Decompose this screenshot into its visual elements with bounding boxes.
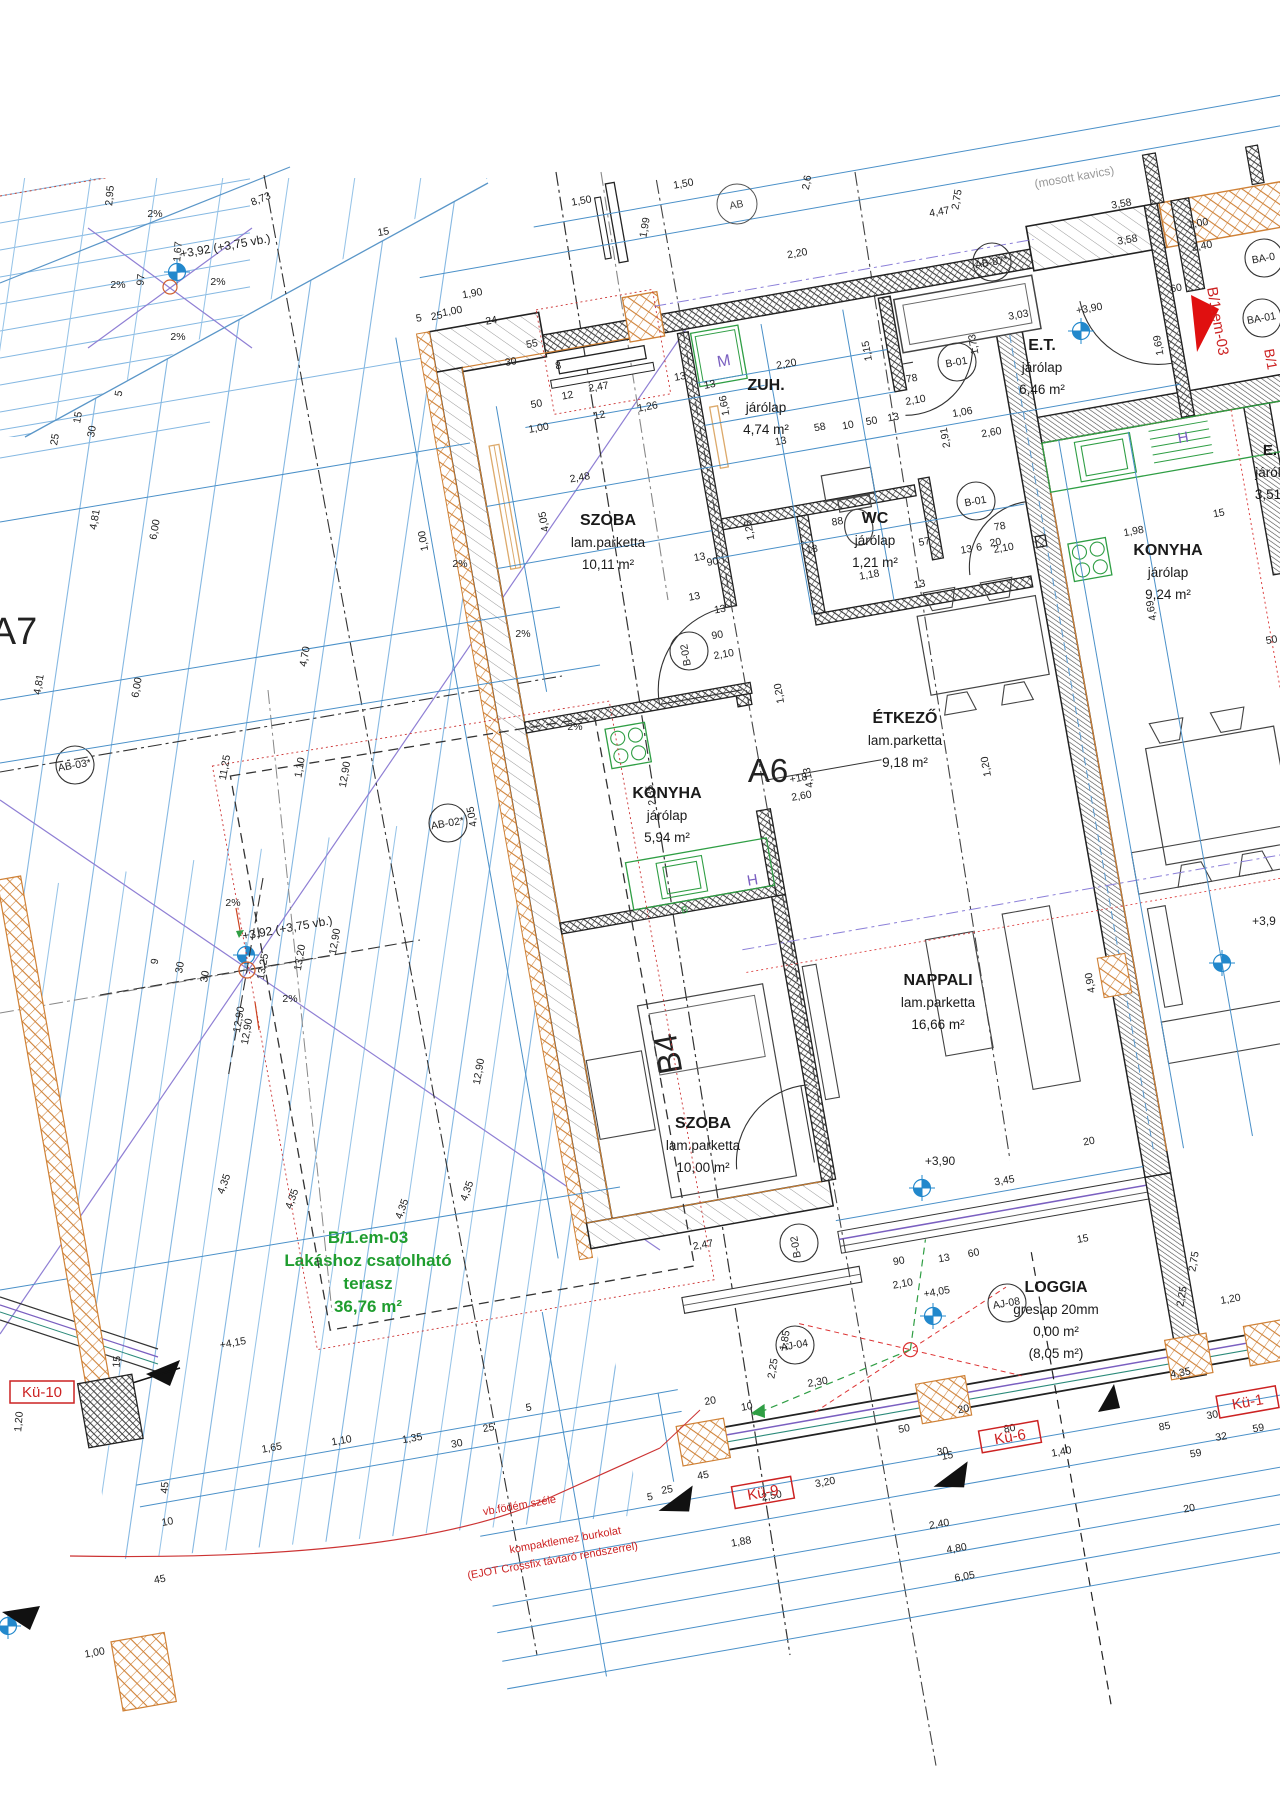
svg-text:15: 15 <box>377 225 391 239</box>
svg-text:32: 32 <box>1214 1430 1228 1444</box>
svg-text:30: 30 <box>173 961 187 975</box>
svg-text:59: 59 <box>1189 1447 1203 1461</box>
svg-text:terasz: terasz <box>343 1274 392 1293</box>
svg-text:58: 58 <box>813 420 827 434</box>
svg-text:1,20: 1,20 <box>12 1411 26 1433</box>
svg-text:Lakáshoz csatolható: Lakáshoz csatolható <box>284 1251 451 1270</box>
svg-text:13: 13 <box>937 1251 951 1265</box>
svg-text:2,95: 2,95 <box>103 185 117 207</box>
svg-text:AB: AB <box>729 198 745 212</box>
svg-text:lam.parketta: lam.parketta <box>901 995 976 1010</box>
svg-text:lam.parketta: lam.parketta <box>868 733 943 748</box>
svg-text:15: 15 <box>71 411 85 425</box>
svg-text:30: 30 <box>85 425 99 439</box>
svg-text:6,46 m²: 6,46 m² <box>1019 382 1065 397</box>
svg-text:10: 10 <box>841 419 855 433</box>
svg-text:5,94 m²: 5,94 m² <box>644 830 690 845</box>
svg-text:13: 13 <box>960 543 974 557</box>
svg-text:2%: 2% <box>225 897 240 909</box>
svg-text:13: 13 <box>913 577 927 591</box>
svg-text:járólap: járólap <box>646 808 688 823</box>
svg-text:9,24 m²: 9,24 m² <box>1145 587 1191 602</box>
svg-text:2%: 2% <box>282 993 297 1005</box>
svg-text:20: 20 <box>1082 1135 1096 1149</box>
svg-text:90: 90 <box>706 555 720 569</box>
svg-text:SZOBA: SZOBA <box>675 1115 731 1132</box>
svg-text:2%: 2% <box>452 558 467 570</box>
svg-text:10,11 m²: 10,11 m² <box>582 557 635 572</box>
svg-text:85: 85 <box>1158 1420 1172 1434</box>
svg-text:lam.parketta: lam.parketta <box>666 1138 741 1153</box>
svg-text:2%: 2% <box>515 628 530 640</box>
svg-text:10,00 m²: 10,00 m² <box>676 1160 730 1175</box>
svg-text:55: 55 <box>525 337 539 351</box>
svg-text:20: 20 <box>703 1394 717 1408</box>
svg-text:45: 45 <box>159 1481 172 1494</box>
svg-text:9,18 m²: 9,18 m² <box>882 755 928 770</box>
svg-text:+3,9: +3,9 <box>1252 914 1276 928</box>
svg-text:50: 50 <box>530 397 544 411</box>
svg-text:10: 10 <box>740 1400 754 1414</box>
svg-text:24: 24 <box>485 314 499 328</box>
svg-text:2%: 2% <box>210 276 225 288</box>
svg-text:A7: A7 <box>0 611 37 653</box>
svg-text:90: 90 <box>711 628 725 642</box>
svg-text:60: 60 <box>967 1246 981 1260</box>
svg-text:78: 78 <box>993 520 1007 534</box>
svg-text:B/1.em-03: B/1.em-03 <box>328 1228 408 1247</box>
svg-text:E.T.: E.T. <box>1028 337 1056 354</box>
svg-text:2%: 2% <box>170 331 185 343</box>
svg-text:KONYHA: KONYHA <box>1133 542 1203 559</box>
svg-text:30: 30 <box>504 355 518 369</box>
svg-text:járólap: járólap <box>854 533 896 548</box>
svg-text:50: 50 <box>865 414 879 428</box>
svg-text:25: 25 <box>482 1421 496 1435</box>
svg-text:ÉTKEZŐ: ÉTKEZŐ <box>873 708 938 727</box>
svg-text:13: 13 <box>713 603 727 617</box>
svg-text:60: 60 <box>1169 281 1183 295</box>
svg-text:3,51: 3,51 <box>1255 487 1280 502</box>
svg-text:járólap: járólap <box>745 400 787 415</box>
svg-text:2%: 2% <box>567 721 582 733</box>
svg-text:20: 20 <box>1182 1502 1196 1516</box>
svg-text:SZOBA: SZOBA <box>580 512 636 529</box>
svg-text:97: 97 <box>135 273 148 286</box>
svg-text:12: 12 <box>561 389 575 403</box>
svg-text:25: 25 <box>660 1483 674 1497</box>
svg-text:15: 15 <box>1076 1232 1090 1246</box>
svg-text:50: 50 <box>1265 633 1279 647</box>
svg-text:+3,90: +3,90 <box>925 1154 956 1168</box>
svg-text:2,6: 2,6 <box>800 174 814 191</box>
svg-text:ZUH.: ZUH. <box>747 377 784 394</box>
svg-text:13: 13 <box>693 550 707 564</box>
svg-text:15: 15 <box>111 1355 124 1368</box>
svg-text:A6: A6 <box>748 752 788 789</box>
svg-text:30: 30 <box>936 1445 950 1459</box>
svg-text:36,76 m²: 36,76 m² <box>334 1297 402 1316</box>
svg-text:16,66 m²: 16,66 m² <box>911 1017 965 1032</box>
svg-text:4,74 m²: 4,74 m² <box>743 422 789 437</box>
svg-text:Kü-10: Kü-10 <box>22 1384 62 1401</box>
svg-text:90: 90 <box>892 1254 906 1268</box>
svg-text:12: 12 <box>593 409 607 423</box>
svg-text:13: 13 <box>886 411 900 425</box>
svg-text:járólap: járólap <box>1147 565 1189 580</box>
svg-text:59: 59 <box>1252 1421 1266 1435</box>
svg-text:LOGGIA: LOGGIA <box>1024 1279 1088 1296</box>
svg-text:járólap: járólap <box>1021 360 1063 375</box>
svg-text:járól: járól <box>1254 465 1280 480</box>
svg-text:30: 30 <box>1206 1408 1220 1422</box>
svg-text:25: 25 <box>48 433 62 447</box>
svg-text:45: 45 <box>696 1469 710 1483</box>
svg-text:30: 30 <box>198 970 212 984</box>
svg-text:2%: 2% <box>110 279 125 291</box>
svg-text:E.: E. <box>1263 442 1277 459</box>
svg-text:13: 13 <box>688 590 702 604</box>
svg-text:10: 10 <box>161 1515 175 1529</box>
svg-text:45: 45 <box>153 1573 167 1587</box>
svg-text:1,21 m²: 1,21 m² <box>852 555 898 570</box>
svg-text:57: 57 <box>918 535 932 549</box>
svg-text:50: 50 <box>897 1422 911 1436</box>
svg-text:KONYHA: KONYHA <box>632 785 702 802</box>
svg-text:88: 88 <box>831 515 845 529</box>
svg-text:NAPPALI: NAPPALI <box>903 972 972 989</box>
svg-text:30: 30 <box>450 1437 464 1451</box>
svg-text:lam.parketta: lam.parketta <box>571 535 646 550</box>
svg-text:15: 15 <box>1212 506 1226 520</box>
svg-text:2%: 2% <box>147 208 162 220</box>
svg-text:13: 13 <box>805 543 819 557</box>
svg-text:20: 20 <box>957 1402 971 1416</box>
svg-text:(8,05 m²): (8,05 m²) <box>1029 1346 1084 1361</box>
svg-text:1,67: 1,67 <box>171 241 185 263</box>
svg-text:25: 25 <box>430 309 444 323</box>
svg-text:78: 78 <box>905 372 919 386</box>
svg-text:13: 13 <box>703 378 717 392</box>
svg-text:13: 13 <box>673 370 687 384</box>
svg-text:WC: WC <box>862 510 889 527</box>
svg-text:0,00 m²: 0,00 m² <box>1033 1324 1079 1339</box>
